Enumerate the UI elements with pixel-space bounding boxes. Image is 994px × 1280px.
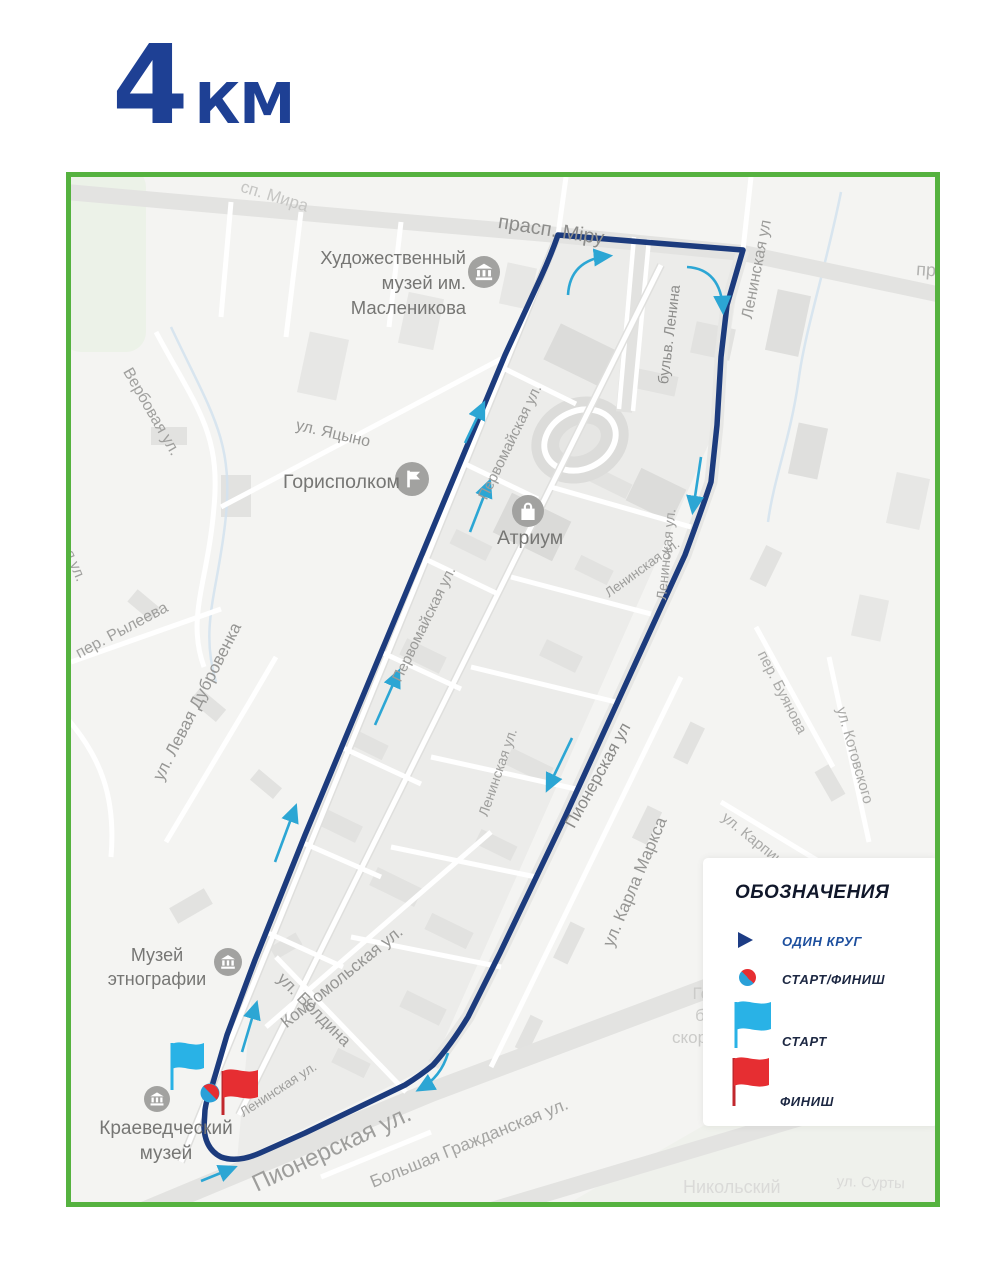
gorispolkom-flag-icon (395, 462, 429, 496)
course-distance-unit: КМ (195, 77, 295, 133)
start-finish-marker (201, 1084, 220, 1103)
atrium-bag-icon (512, 495, 544, 527)
local-history-museum-icon (144, 1086, 170, 1112)
route-map: сп. Мира прасп. Міру пр Ленинская ул бул… (66, 172, 940, 1207)
course-distance-number: 4 (112, 30, 185, 140)
landmark-art-museum: Художественный музей им. Масленикова (316, 246, 466, 321)
art-museum-icon (468, 256, 500, 288)
legend-panel: ОБОЗНАЧЕНИЯ ОДИН КРУГ СТАРТ/ФИНИШ СТАРТ … (703, 858, 938, 1126)
landmark-atrium: Атриум (497, 527, 563, 550)
legend-start-label: СТАРТ (782, 1034, 827, 1049)
start-flag-icon (733, 998, 775, 1050)
legend-finish-label: ФИНИШ (780, 1094, 834, 1109)
legend-one-lap-label: ОДИН КРУГ (782, 934, 862, 949)
finish-flag-icon (731, 1054, 773, 1108)
route-map-page: { "title": {"number": "4", "unit": "КМ"}… (0, 0, 994, 1280)
course-title: 4 КМ (112, 30, 294, 140)
landmark-gorispolkom: Горисполком (283, 471, 400, 494)
street-label-pr-partial: пр (916, 259, 937, 281)
landmark-local-history-museum: Краеведческий музей (85, 1117, 247, 1166)
street-label-surty: ул. Сурты (836, 1173, 905, 1192)
legend-title: ОБОЗНАЧЕНИЯ (735, 882, 889, 904)
one-lap-arrow-icon (738, 932, 753, 948)
ethnography-museum-icon (214, 948, 242, 976)
start-finish-dot-icon (739, 969, 756, 986)
landmark-ethnography-museum: Музей этнографии (101, 943, 213, 992)
street-label-nikolskiy: Никольский (683, 1177, 781, 1198)
legend-start-finish-label: СТАРТ/ФИНИШ (782, 972, 885, 987)
